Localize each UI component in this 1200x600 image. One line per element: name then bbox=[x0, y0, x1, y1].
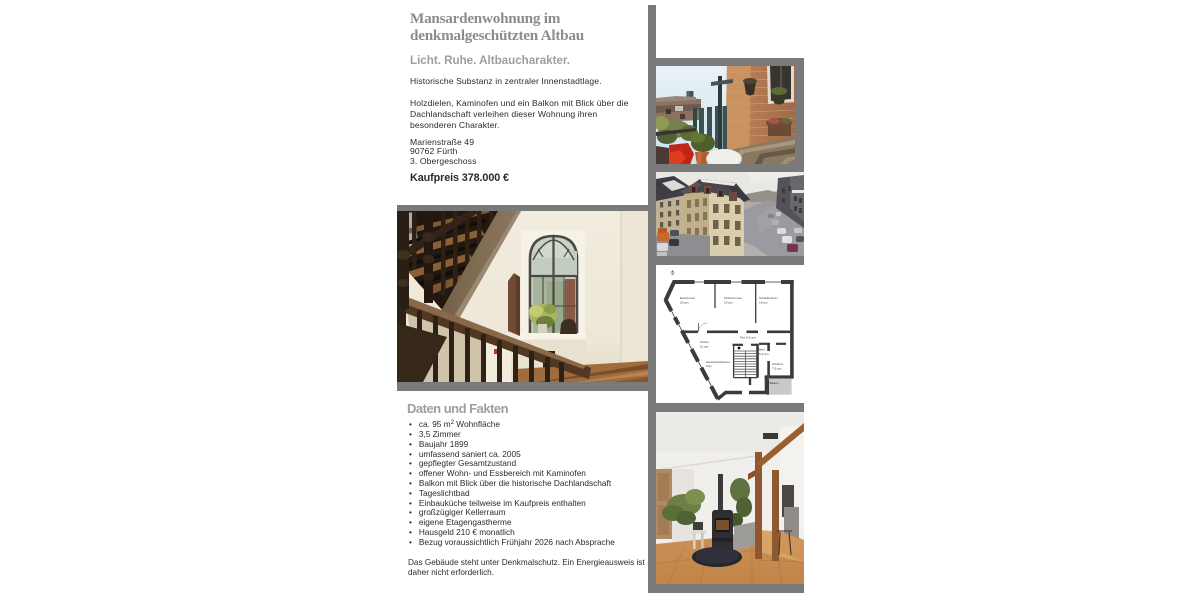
svg-text:Balkon: Balkon bbox=[769, 381, 779, 385]
svg-text:Flur 6,6 qm: Flur 6,6 qm bbox=[740, 335, 756, 339]
svg-text:20 qm: 20 qm bbox=[680, 300, 689, 304]
svg-text:7,5 qm: 7,5 qm bbox=[772, 366, 782, 370]
svg-text:18 qm: 18 qm bbox=[759, 300, 768, 304]
svg-text:Arbeitsz.: Arbeitsz. bbox=[772, 362, 784, 366]
svg-text:Bad: Bad bbox=[759, 347, 765, 351]
svg-text:Esszimmer: Esszimmer bbox=[680, 296, 695, 300]
svg-text:Wohnzimmer: Wohnzimmer bbox=[724, 296, 742, 300]
svg-text:Schlafzimmer: Schlafzimmer bbox=[759, 296, 778, 300]
svg-text:Küche: Küche bbox=[700, 340, 709, 344]
svg-text:8 qm: 8 qm bbox=[706, 363, 712, 367]
svg-text:19 qm: 19 qm bbox=[724, 300, 733, 304]
svg-text:6,2 qm: 6,2 qm bbox=[759, 352, 769, 356]
svg-text:Hauswirtschaftsraum: Hauswirtschaftsraum bbox=[706, 360, 730, 364]
svg-text:11 qm: 11 qm bbox=[700, 344, 709, 348]
